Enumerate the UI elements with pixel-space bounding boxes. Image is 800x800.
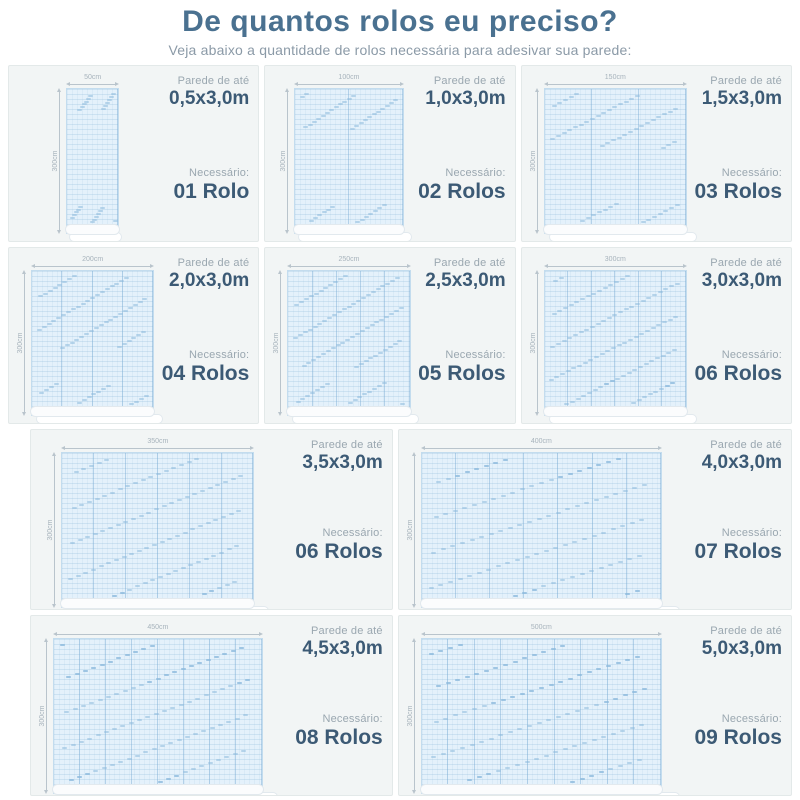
wall-texture-dash (486, 569, 491, 571)
wall-texture-dash (675, 283, 680, 285)
wall-texture-dash (77, 402, 82, 404)
height-dimension-arrow-icon: 300cm (272, 270, 287, 416)
wall-texture-dash (355, 333, 360, 335)
wall-texture-dash (48, 290, 53, 292)
wall-texture-dash (568, 473, 573, 475)
wall-texture-dash (563, 307, 568, 309)
wall-width-label: 50cm (66, 74, 119, 82)
rolls-needed-value: 01 Rolo (154, 180, 249, 204)
wall-illustration-zone: 300cm 50cm (16, 73, 154, 234)
wallpaper-roll-icon (65, 224, 120, 235)
width-dimension-arrow-icon: 50cm (66, 76, 119, 88)
wall-column: 300cm (544, 258, 687, 416)
wall-texture-dash (49, 386, 54, 388)
wallpaper-strip (422, 639, 449, 793)
wall-texture-dash (635, 95, 640, 97)
wall-texture-dash (622, 134, 627, 136)
wall-texture-dash (458, 644, 463, 646)
wall-texture-dash (672, 349, 677, 351)
wall-texture-dash (482, 501, 487, 503)
wall-texture-dash (177, 739, 182, 741)
wall-texture-dash (588, 359, 593, 361)
wall-texture-dash (616, 662, 621, 664)
wall-texture-dash (42, 326, 47, 328)
wall-texture-dash (594, 356, 599, 358)
wall-texture-dash (321, 115, 326, 117)
vertical-arrow-line (24, 272, 25, 414)
rolls-needed-value: 06 Rolos (263, 540, 383, 564)
wall-texture-dash (625, 593, 630, 595)
wall-texture-dash (429, 653, 434, 655)
wall-texture-dash (47, 323, 52, 325)
wall-texture-dash (639, 333, 644, 335)
wall-texture-dash (200, 490, 205, 492)
wall-width-label: 200cm (31, 256, 154, 264)
wall-texture-dash (202, 593, 207, 595)
wall-texture-dash (51, 320, 56, 322)
wall-texture-dash (98, 699, 103, 701)
wall-texture-dash (302, 365, 307, 367)
wall-texture-dash (552, 105, 557, 107)
wall-texture-dash (113, 220, 118, 222)
wall-texture-dash (470, 539, 475, 541)
wall-texture-dash (658, 213, 663, 215)
wall-texture-dash (455, 679, 460, 681)
wall-illustration (421, 452, 662, 608)
wall-texture-dash (166, 778, 171, 780)
wall-texture-dash (389, 313, 394, 315)
wall-texture-dash (385, 283, 390, 285)
wall-texture-dash (577, 470, 582, 472)
wall-size-prefix-label: Parede de até (687, 257, 782, 269)
wall-texture-dash (601, 532, 606, 534)
wall-texture-dash (462, 507, 467, 509)
wall-texture-dash (645, 122, 650, 124)
wallpaper-strips (67, 89, 118, 233)
wall-texture-dash (331, 347, 336, 349)
wall-size-block: Parede de até 4,0x3,0m (662, 439, 782, 474)
wall-column: 400cm (421, 440, 662, 602)
wall-texture-dash (137, 550, 142, 552)
wall-texture-dash (477, 776, 482, 778)
wall-texture-dash (438, 650, 443, 652)
wall-texture-dash (385, 105, 390, 107)
wall-texture-dash (67, 278, 72, 280)
wall-texture-dash (438, 584, 443, 586)
wall-texture-dash (570, 401, 575, 403)
wall-texture-dash (584, 707, 589, 709)
wall-texture-dash (88, 95, 93, 97)
wall-height-label: 300cm (273, 332, 280, 353)
panel-info: Parede de até 1,5x3,0m Necessário: 03 Ro… (687, 73, 782, 234)
wall-texture-dash (575, 710, 580, 712)
wall-texture-dash (85, 300, 90, 302)
wallpaper-strip (528, 639, 555, 793)
wall-texture-dash (608, 206, 613, 208)
wall-texture-dash (100, 664, 105, 666)
wall-texture-dash (590, 118, 595, 120)
panel-grid-row-3: 300cm 350cm Parede de até 3,5x3,0m (30, 429, 792, 610)
wall-texture-dash (614, 203, 619, 205)
wall-column: 100cm (294, 76, 405, 234)
wall-texture-dash (168, 742, 173, 744)
wall-width-label: 150cm (544, 74, 687, 82)
wall-texture-dash (661, 147, 666, 149)
wall-texture-dash (92, 219, 97, 221)
wall-texture-dash (388, 346, 393, 348)
wall-texture-dash (604, 496, 609, 498)
wall-size-prefix-label: Parede de até (154, 257, 249, 269)
wall-texture-dash (144, 547, 149, 549)
wall-texture-dash (537, 722, 542, 724)
wall-texture-dash (606, 461, 611, 463)
horizontal-arrow-line (289, 266, 408, 267)
wallpaper-strip (54, 639, 80, 793)
panel-info: Parede de até 5,0x3,0m Necessário: 09 Ro… (662, 623, 782, 788)
wall-illustration (421, 638, 662, 794)
wall-texture-dash (57, 284, 62, 286)
wall-texture-dash (217, 587, 222, 589)
wall-texture-dash (93, 533, 98, 535)
wall-illustration-zone: 300cm 200cm (16, 255, 154, 416)
wall-texture-dash (76, 209, 81, 211)
wall-texture-dash (81, 705, 86, 707)
roll-requirement-panel: 300cm 300cm Parede de até 3,0x3,0m (521, 247, 792, 424)
wall-size-value: 4,5x3,0m (263, 638, 383, 660)
wall-size-prefix-label: Parede de até (154, 75, 249, 87)
wall-texture-dash (460, 747, 465, 749)
wall-texture-dash (638, 366, 643, 368)
wall-size-block: Parede de até 4,5x3,0m (263, 625, 383, 660)
wallpaper-strip (158, 453, 190, 607)
wall-texture-dash (359, 122, 364, 124)
wall-illustration (66, 88, 119, 234)
wall-texture-dash (472, 504, 477, 506)
rolls-needed-block: Necessário: 08 Rolos (263, 713, 383, 750)
wall-texture-dash (395, 277, 400, 279)
wallpaper-strips (295, 89, 404, 233)
height-dimension-arrow-icon: 300cm (406, 638, 421, 794)
wall-size-block: Parede de até 3,0x3,0m (687, 257, 782, 292)
wall-texture-dash (596, 115, 601, 117)
wall-texture-dash (450, 750, 455, 752)
wall-texture-dash (215, 484, 220, 486)
panel-info: Parede de até 3,5x3,0m Necessário: 06 Ro… (263, 437, 383, 602)
wall-texture-dash (613, 698, 618, 700)
wall-texture-dash (631, 402, 636, 404)
wall-texture-dash (431, 552, 436, 554)
rolls-needed-block: Necessário: 06 Rolos (263, 527, 383, 564)
wall-texture-dash (448, 581, 453, 583)
wall-texture-dash (100, 207, 105, 209)
panel-grid-row-1: 300cm 50cm Parede de até 0,5x3,0m (8, 65, 792, 242)
wall-texture-dash (482, 705, 487, 707)
wall-texture-dash (373, 210, 378, 212)
wallpaper-strips (54, 639, 262, 793)
rolls-needed-label: Necessário: (687, 167, 782, 179)
wall-texture-dash (95, 498, 100, 500)
wall-texture-dash (101, 108, 106, 110)
wall-column: 450cm (53, 626, 263, 788)
roll-requirement-panel: 300cm 350cm Parede de até 3,5x3,0m (30, 429, 393, 610)
header: De quantos rolos eu preciso? Veja abaixo… (0, 5, 800, 58)
wall-texture-dash (668, 319, 673, 321)
wall-texture-dash (562, 132, 567, 134)
wallpaper-roll-icon (543, 406, 688, 417)
wall-texture-dash (632, 369, 637, 371)
wall-texture-dash (160, 745, 165, 747)
wall-texture-dash (195, 698, 200, 700)
wall-texture-dash (429, 587, 434, 589)
wall-texture-dash (515, 764, 520, 766)
width-dimension-arrow-icon: 200cm (31, 258, 154, 270)
wall-size-prefix-label: Parede de até (411, 257, 506, 269)
wall-texture-dash (314, 293, 319, 295)
wall-texture-dash (586, 217, 591, 219)
wall-texture-dash (503, 459, 508, 461)
wall-texture-dash (158, 781, 163, 783)
wall-texture-dash (225, 584, 230, 586)
wallpaper-strips (422, 639, 661, 793)
wall-texture-dash (370, 324, 375, 326)
wall-texture-dash (539, 482, 544, 484)
wall-texture-dash (316, 356, 321, 358)
wall-texture-dash (637, 399, 642, 401)
wallpaper-strip (126, 453, 158, 607)
wall-texture-dash (501, 699, 506, 701)
wall-height-label: 300cm (17, 332, 24, 353)
wall-texture-dash (559, 277, 564, 279)
wall-texture-dash (354, 125, 359, 127)
wall-texture-dash (313, 326, 318, 328)
wall-texture-dash (606, 665, 611, 667)
height-dimension-arrow-icon: 300cm (51, 88, 66, 234)
wall-texture-dash (332, 314, 337, 316)
wall-height-label: 300cm (280, 150, 287, 171)
wall-texture-dash (91, 569, 96, 571)
wall-texture-dash (89, 702, 94, 704)
wall-texture-dash (534, 553, 539, 555)
wall-texture-dash (360, 330, 365, 332)
wall-texture-dash (563, 544, 568, 546)
wall-texture-dash (604, 701, 609, 703)
wall-texture-dash (350, 128, 355, 130)
wall-texture-dash (390, 280, 395, 282)
wall-texture-dash (617, 137, 622, 139)
wall-texture-dash (53, 287, 58, 289)
wall-texture-dash (229, 513, 234, 515)
wall-texture-dash (129, 553, 134, 555)
wall-texture-dash (557, 310, 562, 312)
wall-texture-dash (458, 578, 463, 580)
wall-height-label: 300cm (47, 519, 54, 540)
horizontal-arrow-line (546, 266, 685, 267)
wall-texture-dash (226, 721, 231, 723)
wall-texture-dash (568, 678, 573, 680)
wall-texture-dash (603, 209, 608, 211)
rolls-needed-block: Necessário: 07 Rolos (662, 527, 782, 564)
wall-texture-dash (644, 363, 649, 365)
wall-texture-dash (323, 287, 328, 289)
wall-texture-dash (668, 111, 673, 113)
wall-column: 150cm (544, 76, 687, 234)
wallpaper-strip (581, 639, 608, 793)
wall-texture-dash (122, 343, 127, 345)
wall-texture-dash (150, 645, 155, 647)
page-subtitle: Veja abaixo a quantidade de rolos necess… (0, 42, 800, 58)
wall-texture-dash (124, 277, 129, 279)
wall-texture-dash (62, 747, 67, 749)
wall-texture-dash (181, 668, 186, 670)
wall-texture-dash (465, 676, 470, 678)
wall-texture-dash (474, 673, 479, 675)
wall-texture-dash (80, 106, 85, 108)
wall-texture-dash (351, 303, 356, 305)
rolls-needed-value: 03 Rolos (687, 180, 782, 204)
wall-texture-dash (639, 125, 644, 127)
wall-texture-dash (593, 389, 598, 391)
wall-texture-dash (308, 329, 313, 331)
wall-texture-dash (441, 753, 446, 755)
wall-texture-dash (601, 736, 606, 738)
wall-texture-dash (245, 679, 250, 681)
wall-texture-dash (315, 389, 320, 391)
wall-texture-dash (179, 464, 184, 466)
wall-texture-dash (367, 391, 372, 393)
wall-texture-dash (210, 727, 215, 729)
wall-texture-dash (39, 392, 44, 394)
rolls-needed-value: 06 Rolos (687, 362, 782, 386)
wallpaper-roll-icon (52, 784, 264, 795)
wall-texture-dash (338, 278, 343, 280)
wall-texture-dash (123, 521, 128, 523)
wall-column: 250cm (287, 258, 410, 416)
wall-texture-dash (218, 724, 223, 726)
wall-texture-dash (241, 750, 246, 752)
wall-texture-dash (326, 209, 331, 211)
width-dimension-arrow-icon: 500cm (421, 626, 662, 638)
wall-texture-dash (187, 461, 192, 463)
wall-texture-dash (376, 288, 381, 290)
wall-texture-dash (589, 570, 594, 572)
wall-texture-dash (139, 684, 144, 686)
wall-texture-dash (117, 346, 122, 348)
wall-texture-dash (520, 693, 525, 695)
wall-texture-dash (114, 283, 119, 285)
wall-texture-dash (615, 378, 620, 380)
wall-texture-dash (95, 294, 100, 296)
wall-texture-dash (384, 316, 389, 318)
wall-texture-dash (642, 688, 647, 690)
wall-texture-dash (233, 753, 238, 755)
wall-texture-dash (81, 303, 86, 305)
wall-texture-dash (108, 527, 113, 529)
wall-width-label: 350cm (61, 438, 254, 446)
wallpaper-strip (123, 271, 153, 415)
panel-info: Parede de até 2,5x3,0m Necessário: 05 Ro… (411, 255, 506, 416)
wall-texture-dash (376, 111, 381, 113)
wall-texture-dash (522, 592, 527, 594)
wall-texture-dash (114, 559, 119, 561)
wall-texture-dash (577, 365, 582, 367)
wall-texture-dash (156, 678, 161, 680)
wall-texture-dash (365, 327, 370, 329)
wall-column: 50cm (66, 76, 119, 234)
width-dimension-arrow-icon: 150cm (544, 76, 687, 88)
wall-texture-dash (123, 310, 128, 312)
wall-texture-dash (237, 682, 242, 684)
wall-texture-dash (363, 119, 368, 121)
panel-info: Parede de até 1,0x3,0m Necessário: 02 Ro… (411, 73, 506, 234)
wall-texture-dash (576, 398, 581, 400)
wall-texture-dash (340, 342, 345, 344)
wall-texture-dash (133, 304, 138, 306)
wall-texture-dash (345, 339, 350, 341)
wall-texture-dash (635, 656, 640, 658)
wall-texture-dash (486, 773, 491, 775)
wall-texture-dash (594, 499, 599, 501)
wall-texture-dash (76, 306, 81, 308)
wall-texture-dash (505, 767, 510, 769)
wallpaper-strip (558, 453, 592, 607)
rolls-needed-label: Necessário: (263, 527, 383, 539)
wall-texture-dash (232, 581, 237, 583)
wall-texture-dash (583, 362, 588, 364)
wall-texture-dash (665, 385, 670, 387)
rolls-needed-value: 09 Rolos (662, 726, 782, 750)
wall-texture-dash (127, 340, 132, 342)
wallpaper-strips (62, 453, 253, 607)
wall-texture-dash (641, 300, 646, 302)
wall-texture-dash (544, 550, 549, 552)
wall-texture-dash (316, 118, 321, 120)
wall-texture-dash (455, 475, 460, 477)
wall-texture-dash (131, 518, 136, 520)
wall-texture-dash (201, 730, 206, 732)
wall-texture-dash (446, 478, 451, 480)
wall-texture-dash (197, 662, 202, 664)
wall-texture-dash (579, 124, 584, 126)
wall-texture-dash (98, 210, 103, 212)
rolls-needed-label: Necessário: (411, 167, 506, 179)
wall-column: 350cm (61, 440, 254, 602)
wall-texture-dash (185, 736, 190, 738)
height-dimension-arrow-icon: 300cm (529, 88, 544, 234)
wall-texture-dash (60, 644, 65, 646)
wall-texture-dash (87, 738, 92, 740)
wall-illustration-zone: 300cm 100cm (272, 73, 410, 234)
wall-texture-dash (580, 220, 585, 222)
wallpaper-strip (627, 453, 661, 607)
wallpaper-strips (288, 271, 409, 415)
wall-texture-dash (382, 382, 387, 384)
panel-grid-row-2: 300cm 200cm Parede de até 2,0x3,0m (8, 247, 792, 424)
wall-texture-dash (525, 556, 530, 558)
wall-texture-dash (623, 490, 628, 492)
roll-requirement-panel: 300cm 250cm Parede de até 2,5x3,0m (264, 247, 515, 424)
wall-texture-dash (622, 342, 627, 344)
wall-texture-dash (627, 372, 632, 374)
wallpaper-strip (456, 453, 490, 607)
wall-texture-dash (364, 216, 369, 218)
wall-texture-dash (470, 744, 475, 746)
wall-texture-dash (570, 576, 575, 578)
wall-texture-dash (434, 516, 439, 518)
wall-texture-dash (501, 495, 506, 497)
vertical-arrow-line (54, 454, 55, 606)
wall-texture-dash (446, 682, 451, 684)
rolls-needed-label: Necessário: (662, 713, 782, 725)
